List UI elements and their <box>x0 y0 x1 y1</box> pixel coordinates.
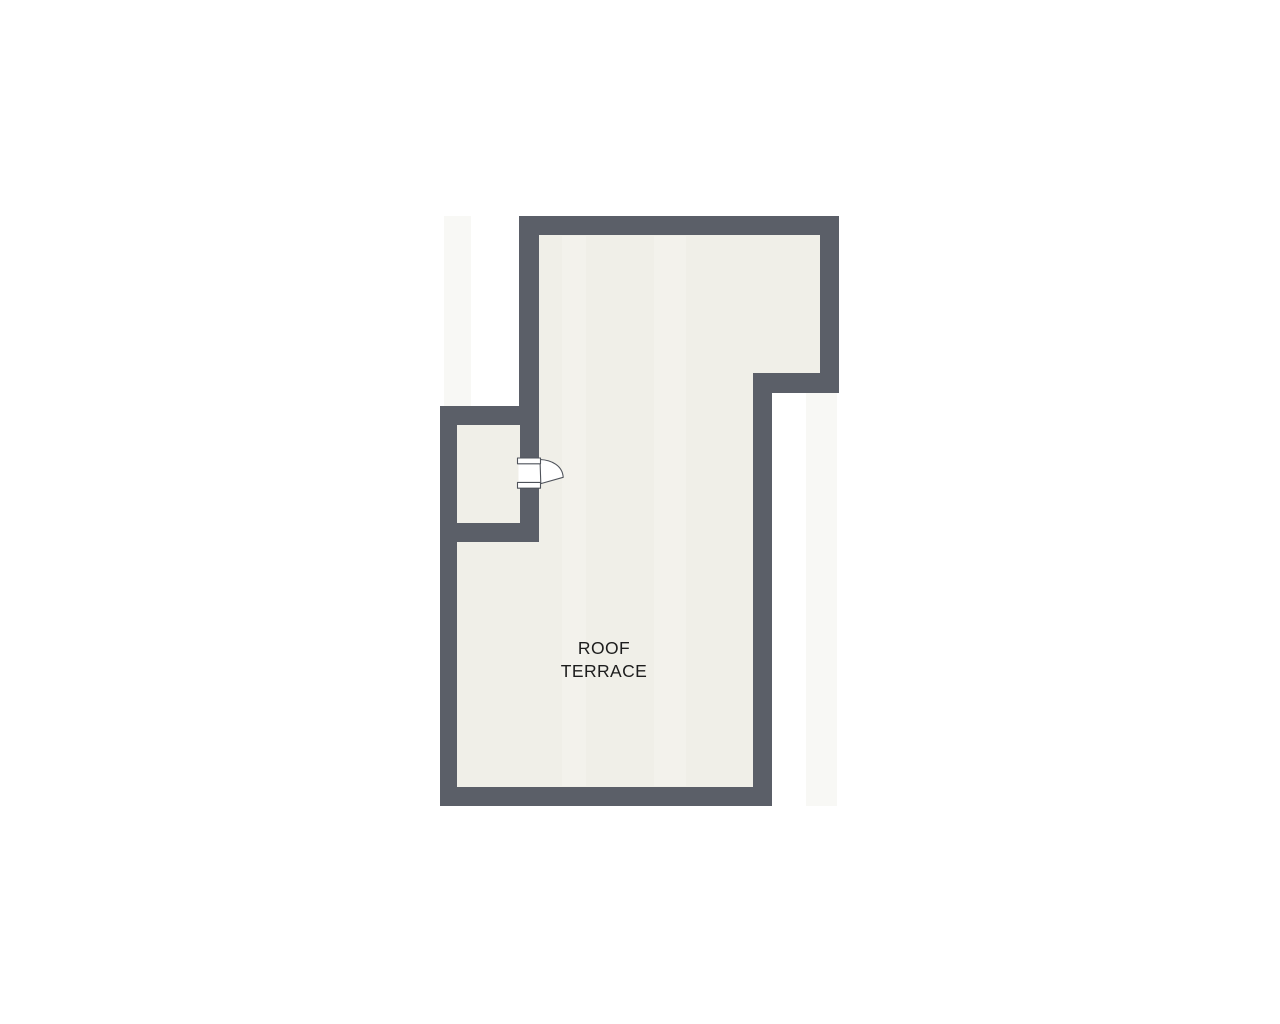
floor-plan-page: ROOF TERRACE <box>0 0 1280 1024</box>
door-jamb-top <box>518 458 541 464</box>
room-label-line2: TERRACE <box>454 660 754 683</box>
floor-texture-streak <box>562 236 586 786</box>
floor-texture-streak <box>654 236 686 786</box>
door-jamb-bottom <box>518 482 541 488</box>
floor-plan <box>0 0 1280 1024</box>
room-label-line1: ROOF <box>454 637 754 660</box>
small-room-floor <box>457 425 520 523</box>
background-artifact-band-right <box>806 393 837 806</box>
room-label: ROOF TERRACE <box>454 637 754 682</box>
